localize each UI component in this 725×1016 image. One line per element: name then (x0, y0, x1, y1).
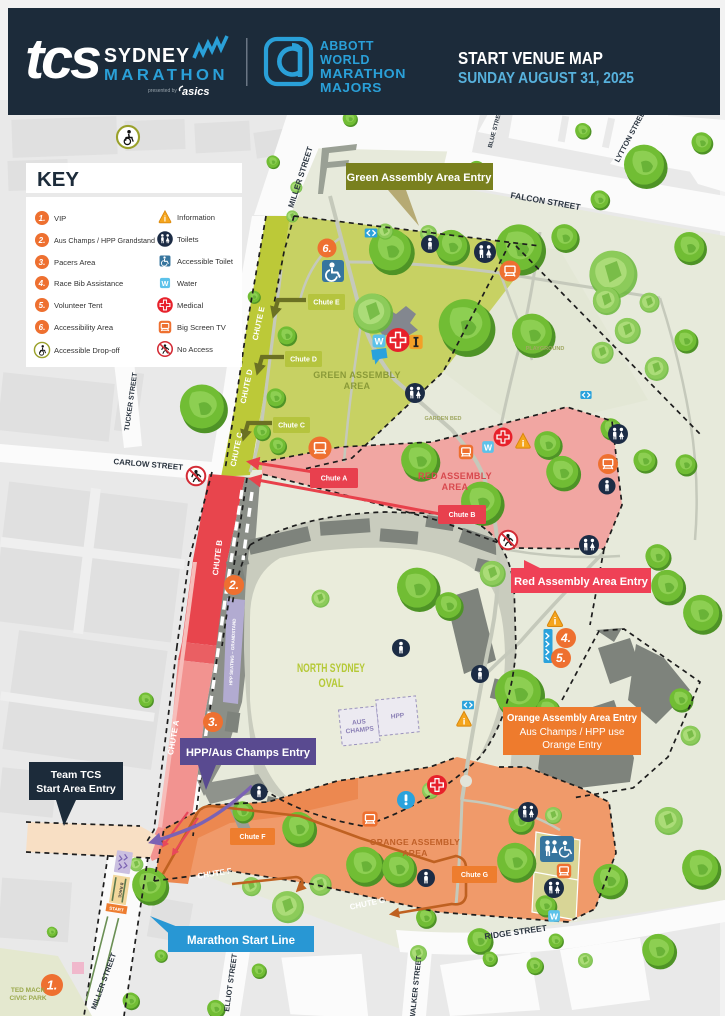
svg-text:Orange Entry: Orange Entry (542, 740, 601, 751)
svg-text:2.: 2. (228, 578, 239, 592)
svg-text:asics: asics (182, 86, 210, 98)
svg-text:RED ASSEMBLY: RED ASSEMBLY (418, 471, 492, 481)
svg-text:AREA: AREA (344, 381, 371, 391)
svg-text:Pacers Area: Pacers Area (54, 258, 96, 267)
svg-text:5.: 5. (39, 301, 46, 310)
svg-text:GARDEN BED: GARDEN BED (425, 416, 462, 422)
svg-text:HPP: HPP (391, 712, 406, 720)
svg-text:tcs: tcs (25, 27, 100, 91)
svg-text:Accessible Toilet: Accessible Toilet (177, 257, 234, 266)
svg-text:Red Assembly Area Entry: Red Assembly Area Entry (514, 576, 649, 588)
svg-text:5.: 5. (556, 651, 566, 665)
svg-text:4.: 4. (38, 279, 46, 288)
svg-text:Team TCS: Team TCS (51, 769, 102, 781)
svg-text:Volunteer Tent: Volunteer Tent (54, 301, 103, 310)
svg-text:KEY: KEY (37, 169, 80, 191)
svg-text:Race Bib Assistance: Race Bib Assistance (54, 279, 123, 288)
svg-text:HPP/Aus Champs Entry: HPP/Aus Champs Entry (186, 747, 311, 759)
svg-text:OVAL: OVAL (319, 678, 344, 690)
svg-text:Chute E: Chute E (313, 300, 340, 307)
svg-text:No Access: No Access (177, 345, 213, 354)
svg-text:GREEN ASSEMBLY: GREEN ASSEMBLY (313, 370, 401, 380)
svg-text:Chute D: Chute D (290, 357, 317, 364)
svg-text:ORANGE ASSEMBLY: ORANGE ASSEMBLY (370, 837, 460, 847)
svg-text:Chute B: Chute B (449, 512, 476, 519)
svg-text:MARATHON: MARATHON (320, 67, 406, 81)
svg-text:TED MACK: TED MACK (11, 987, 46, 994)
svg-text:Chute F: Chute F (239, 834, 266, 841)
svg-text:6.: 6. (322, 243, 331, 255)
svg-text:MARATHON: MARATHON (104, 67, 228, 84)
svg-text:Accessible Drop-off: Accessible Drop-off (54, 346, 121, 355)
svg-text:6.: 6. (39, 323, 46, 332)
svg-text:Accessibility Area: Accessibility Area (54, 323, 114, 332)
svg-text:PLAYGROUND: PLAYGROUND (526, 346, 565, 352)
svg-text:presented by: presented by (148, 88, 177, 94)
svg-text:Medical: Medical (177, 301, 203, 310)
svg-text:AREA: AREA (402, 848, 427, 858)
svg-text:Chute C: Chute C (278, 423, 305, 430)
svg-text:Aus Champs / HPP Grandstand: Aus Champs / HPP Grandstand (54, 236, 155, 245)
svg-text:SYDNEY: SYDNEY (104, 45, 190, 67)
svg-text:AUS: AUS (352, 718, 367, 726)
svg-text:Water: Water (177, 279, 197, 288)
svg-text:Chute A: Chute A (321, 476, 348, 483)
svg-text:Start Area Entry: Start Area Entry (36, 783, 116, 795)
svg-text:Toilets: Toilets (177, 235, 199, 244)
svg-text:1.: 1. (47, 978, 58, 993)
svg-text:Green Assembly Area Entry: Green Assembly Area Entry (347, 172, 493, 184)
svg-text:2.: 2. (38, 236, 46, 245)
svg-text:START VENUE MAP: START VENUE MAP (458, 48, 603, 68)
svg-text:Marathon Start Line: Marathon Start Line (187, 935, 295, 947)
svg-text:4.: 4. (560, 631, 571, 645)
svg-text:AREA: AREA (442, 482, 469, 492)
svg-text:CIVIC PARK: CIVIC PARK (9, 995, 46, 1002)
svg-text:3.: 3. (208, 715, 218, 729)
svg-text:MAJORS: MAJORS (320, 81, 382, 95)
svg-text:Big Screen TV: Big Screen TV (177, 323, 227, 332)
svg-text:Chute G: Chute G (461, 872, 489, 879)
svg-text:Orange Assembly Area Entry: Orange Assembly Area Entry (507, 712, 637, 724)
svg-text:NORTH SYDNEY: NORTH SYDNEY (297, 663, 365, 675)
svg-text:VIP: VIP (54, 214, 66, 223)
svg-text:3.: 3. (39, 258, 46, 267)
svg-text:1.: 1. (39, 214, 46, 223)
svg-text:Information: Information (177, 213, 215, 222)
svg-text:Aus Champs / HPP use: Aus Champs / HPP use (520, 727, 625, 738)
svg-text:SUNDAY AUGUST 31, 2025: SUNDAY AUGUST 31, 2025 (458, 70, 634, 87)
svg-text:ABBOTT: ABBOTT (320, 39, 374, 53)
svg-text:WORLD: WORLD (320, 53, 370, 67)
